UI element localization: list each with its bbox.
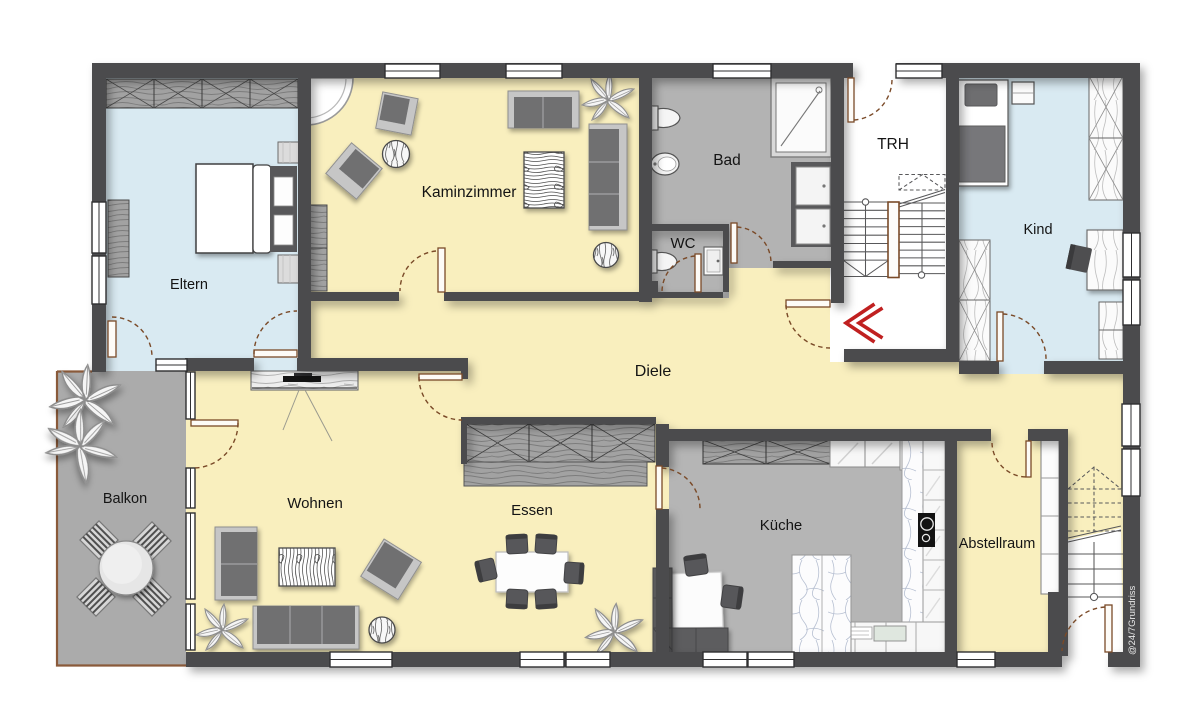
svg-text:WC: WC [671, 235, 696, 252]
svg-text:Bad: Bad [713, 152, 741, 169]
svg-text:TRH: TRH [877, 136, 909, 153]
svg-text:Balkon: Balkon [103, 491, 147, 507]
svg-text:Essen: Essen [511, 502, 553, 519]
svg-text:@24/7Grundriss: @24/7Grundriss [1127, 585, 1138, 655]
svg-text:Kind: Kind [1023, 222, 1052, 238]
svg-text:Diele: Diele [635, 363, 672, 380]
svg-text:Eltern: Eltern [170, 277, 208, 293]
svg-text:Kaminzimmer: Kaminzimmer [422, 184, 517, 201]
svg-text:Abstellraum: Abstellraum [959, 536, 1036, 552]
svg-text:Wohnen: Wohnen [287, 495, 343, 512]
svg-text:Küche: Küche [760, 517, 803, 534]
